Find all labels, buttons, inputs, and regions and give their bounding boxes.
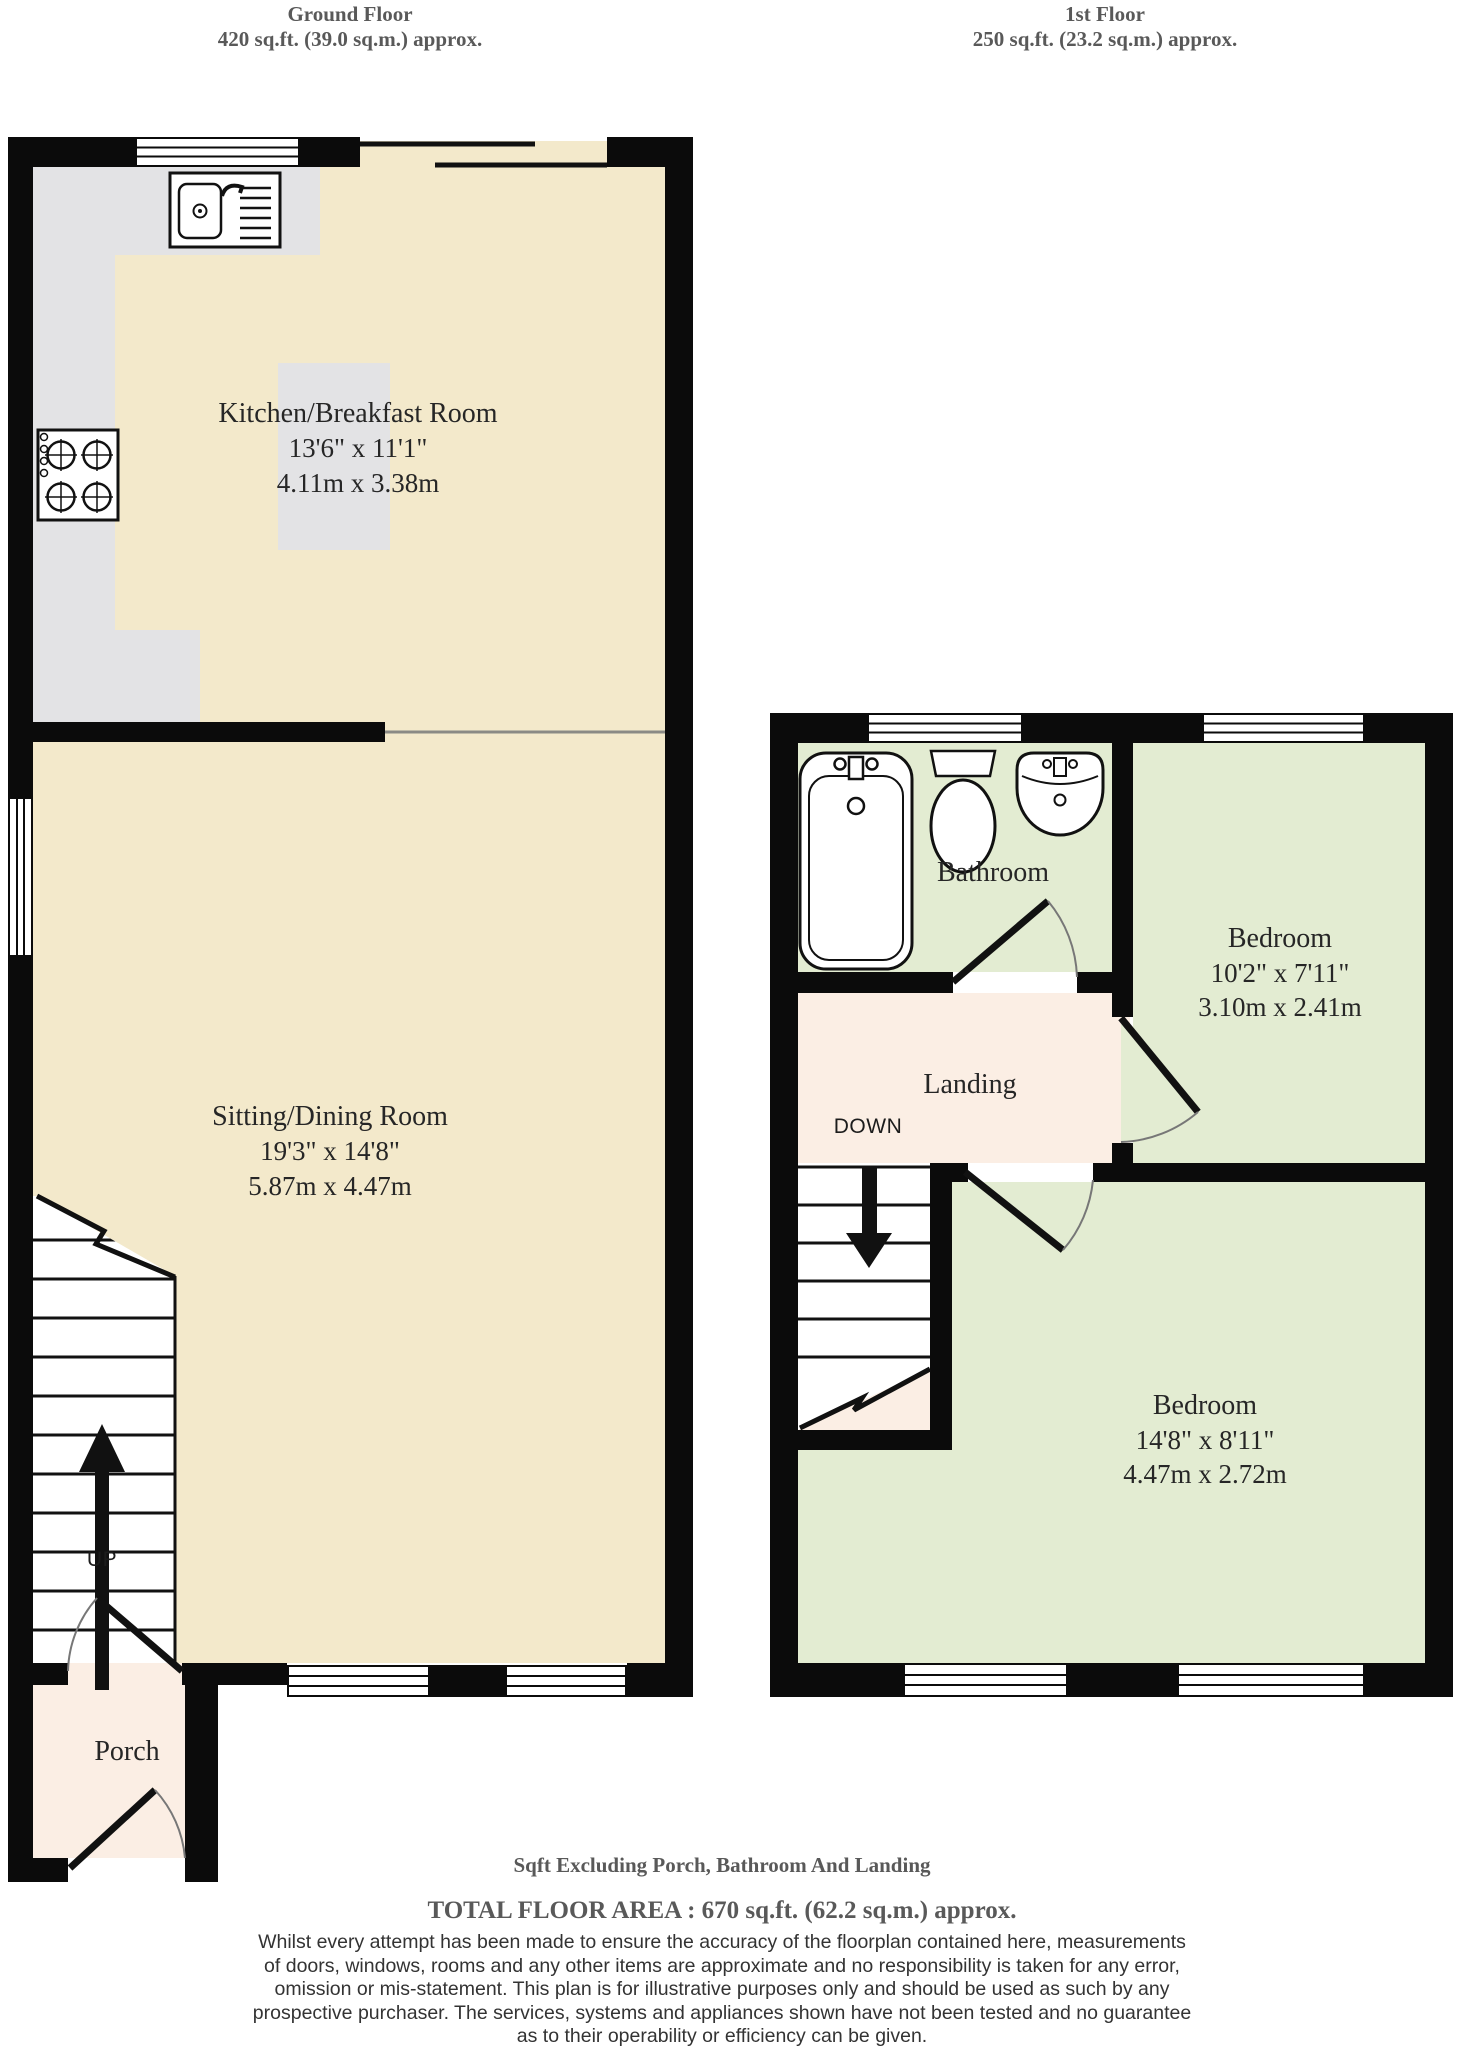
disclaimer-line: prospective purchaser. The services, sys…: [253, 2002, 1191, 2026]
toilet-icon: [931, 751, 995, 872]
kitchen-sink-icon: [170, 173, 280, 247]
bedroom1-label: Bedroom 10'2" x 7'11" 3.10m x 2.41m: [1198, 922, 1362, 1024]
stairs-down: [798, 1163, 930, 1430]
bedroom2-door: [965, 1172, 1063, 1250]
disclaimer-line: Whilst every attempt has been made to en…: [253, 1931, 1191, 1955]
disclaimer-line: omission or mis-statement. This plan is …: [253, 1978, 1191, 2002]
total-floor-area: TOTAL FLOOR AREA : 670 sq.ft. (62.2 sq.m…: [428, 1897, 1017, 1925]
front-door: [70, 1790, 155, 1868]
door-arcs: [68, 901, 1198, 1858]
hob-icon: [38, 430, 118, 520]
bathtub-icon: [800, 753, 912, 969]
sitting-name: Sitting/Dining Room: [212, 1099, 448, 1134]
kitchen-name: Kitchen/Breakfast Room: [218, 396, 497, 431]
stairs-up-label: UP: [87, 1548, 117, 1572]
bedroom2-label: Bedroom 14'8" x 8'11" 4.47m x 2.72m: [1123, 1389, 1287, 1491]
bathroom-label: Bathroom: [937, 855, 1049, 890]
bedroom1-dims-imperial: 10'2" x 7'11": [1198, 956, 1362, 990]
landing-label: Landing: [923, 1067, 1016, 1102]
sitting-dims-metric: 5.87m x 4.47m: [212, 1169, 448, 1204]
porch-name: Porch: [94, 1734, 159, 1769]
disclaimer-line: of doors, windows, rooms and any other i…: [253, 1955, 1191, 1979]
sitting-dims-imperial: 19'3" x 14'8": [212, 1134, 448, 1169]
stairs-up: [33, 1196, 175, 1690]
kitchen-dims-imperial: 13'6" x 11'1": [218, 431, 497, 466]
bathroom-name: Bathroom: [937, 855, 1049, 890]
bedroom2-dims-metric: 4.47m x 2.72m: [1123, 1457, 1287, 1491]
plan-linework: [0, 0, 1466, 2048]
bedroom1-name: Bedroom: [1198, 922, 1362, 956]
floorplan-canvas: Ground Floor 420 sq.ft. (39.0 sq.m.) app…: [0, 0, 1466, 2048]
bedroom2-name: Bedroom: [1123, 1389, 1287, 1423]
bedroom2-dims-imperial: 14'8" x 8'11": [1123, 1423, 1287, 1457]
bedroom1-dims-metric: 3.10m x 2.41m: [1198, 990, 1362, 1024]
kitchen-label: Kitchen/Breakfast Room 13'6" x 11'1" 4.1…: [218, 396, 497, 501]
sitting-label: Sitting/Dining Room 19'3" x 14'8" 5.87m …: [212, 1099, 448, 1204]
porch-label: Porch: [94, 1734, 159, 1769]
basin-icon: [1017, 753, 1103, 835]
exclusion-note: Sqft Excluding Porch, Bathroom And Landi…: [513, 1853, 930, 1878]
disclaimer-text: Whilst every attempt has been made to en…: [253, 1931, 1191, 2048]
bathroom-door: [953, 901, 1048, 982]
door-leaves: [70, 901, 1198, 1868]
disclaimer-line: as to their operability or efficiency ca…: [253, 2025, 1191, 2048]
stairs-down-label: DOWN: [834, 1115, 903, 1139]
landing-name: Landing: [923, 1067, 1016, 1102]
kitchen-dims-metric: 4.11m x 3.38m: [218, 466, 497, 501]
